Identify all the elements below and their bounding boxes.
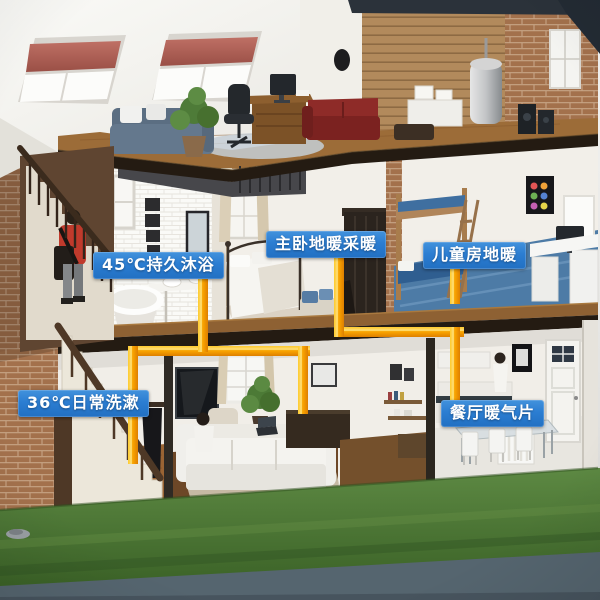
house-cutaway-illustration [0,0,600,600]
house-heating-cutaway-diagram: 45℃持久沐浴 主卧地暖采暖 儿童房地暖 36℃日常洗漱 餐厅暖气片 [0,0,600,600]
label-shower-45c: 45℃持久沐浴 [93,252,224,279]
label-daily-washing-36c: 36℃日常洗漱 [18,390,149,417]
label-children-room-floor-heating: 儿童房地暖 [423,242,526,269]
label-dining-room-radiator: 餐厅暖气片 [441,400,544,427]
photo-vignette [0,0,600,600]
label-master-bedroom-floor-heating: 主卧地暖采暖 [266,231,386,258]
